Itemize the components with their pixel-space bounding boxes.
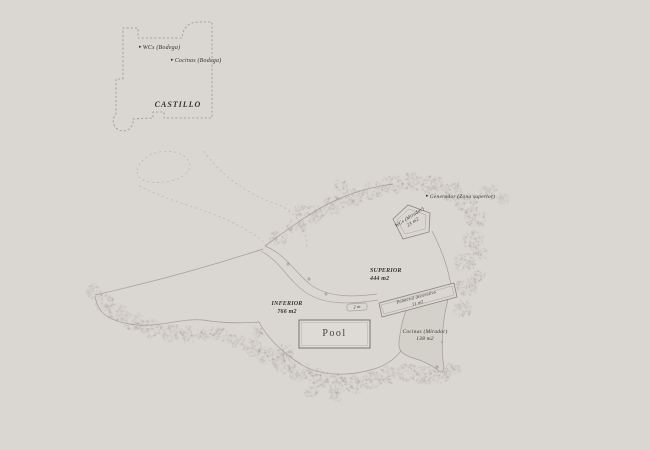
- annotation-text: WCs (Bodega): [143, 45, 181, 51]
- arrow-right-icon: ▸: [426, 194, 429, 199]
- garden-path-right: [204, 151, 307, 247]
- arrow-right-icon: ▸: [171, 58, 174, 63]
- arrow-right-icon: ▸: [139, 45, 142, 50]
- superior-right-boundary: [432, 231, 452, 291]
- plan-linework: [0, 0, 650, 450]
- feature-area: 138 m2: [402, 336, 447, 343]
- annotation-text: Cocinas (Bodega): [175, 58, 222, 64]
- inferior-upper-boundary: [95, 249, 263, 295]
- pool-label: Pool: [299, 320, 370, 348]
- castle-annotation-cocinas-bodega: ▸Cocinas (Bodega): [171, 58, 221, 66]
- castle-outline: [113, 22, 212, 131]
- garden-path-loop: [137, 151, 190, 182]
- walkway: [261, 246, 378, 303]
- superior-upper-boundary: [265, 184, 393, 246]
- zone-name: INFERIOR: [269, 301, 305, 309]
- castle-title: CASTILLO: [143, 100, 213, 110]
- path-width-label: 2 m: [353, 304, 361, 310]
- annotation-text: Generador (Zona superior): [430, 194, 496, 200]
- zone-area: 444 m2: [370, 276, 402, 284]
- zone-name: SUPERIOR: [370, 268, 402, 276]
- castle-annotation-wcs-bodega: ▸WCs (Bodega): [139, 45, 180, 53]
- zone-inferior-label: INFERIOR 766 m2: [269, 301, 305, 317]
- site-plan: ▸WCs (Bodega) ▸Cocinas (Bodega) CASTILLO…: [0, 0, 650, 450]
- dashed-garden-paths: [137, 151, 307, 247]
- walkway-lower-edge: [261, 251, 378, 303]
- cocinas-mirador-label: Cocinas (Mirador) 138 m2: [402, 329, 447, 343]
- zone-area: 766 m2: [269, 309, 305, 317]
- garden-path-lower: [139, 186, 268, 246]
- zone-superior-label: SUPERIOR 444 m2: [370, 268, 402, 284]
- feature-name: Cocinas (Mirador): [402, 329, 447, 336]
- generador-annotation: ▸Generador (Zona superior): [426, 194, 495, 201]
- walkway-upper-edge: [265, 246, 377, 296]
